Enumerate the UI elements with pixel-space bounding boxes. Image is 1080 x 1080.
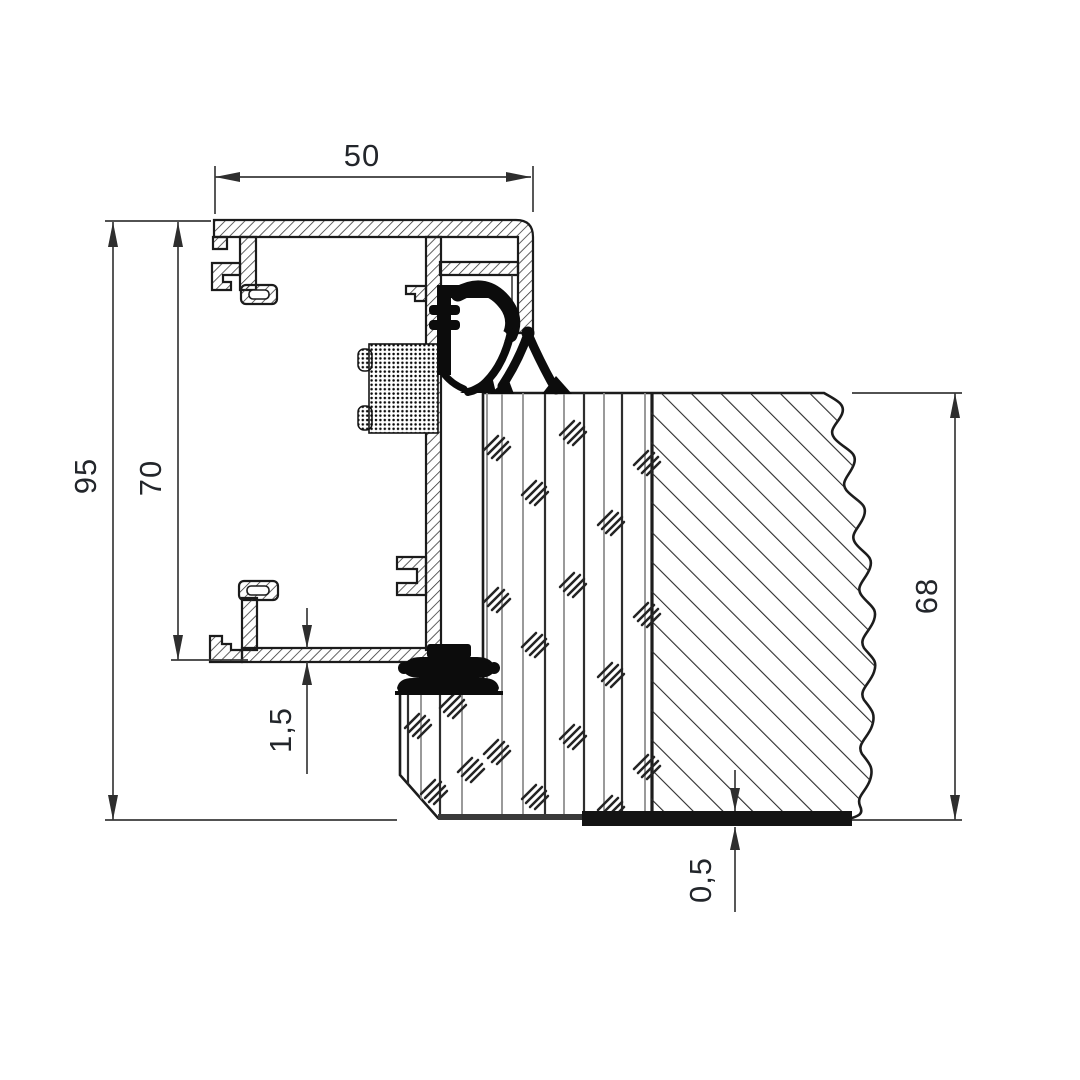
dim-top-width bbox=[215, 166, 533, 214]
frame-left-hook-top bbox=[212, 263, 240, 290]
technical-drawing-page: 50 95 70 1,5 68 0,5 bbox=[0, 0, 1080, 1080]
dim-label-top-width: 50 bbox=[344, 138, 380, 173]
bottom-sheet-left bbox=[438, 814, 586, 820]
rebate-gasket bbox=[429, 285, 572, 394]
dim-label-bottom-sheet-thickness: 0,5 bbox=[683, 857, 718, 903]
dim-overall-height bbox=[105, 221, 397, 820]
frame-chamber-divider bbox=[440, 262, 518, 275]
frame-left-tab bbox=[213, 237, 227, 249]
dim-label-overall-height: 95 bbox=[68, 458, 103, 494]
dim-frame-height bbox=[171, 222, 248, 660]
door-leaf bbox=[400, 390, 886, 826]
frame-left-hook-bottom bbox=[210, 636, 242, 662]
dim-label-flange-thickness: 1,5 bbox=[263, 707, 298, 753]
frame-foot-slot-top bbox=[249, 290, 269, 299]
bottom-sheet-heavy bbox=[582, 811, 852, 826]
frame-left-wall-bottom bbox=[242, 598, 257, 650]
section-hatch-zone bbox=[651, 390, 886, 822]
brush-seal bbox=[358, 344, 438, 433]
section-drawing: 50 95 70 1,5 68 0,5 bbox=[0, 0, 1080, 1080]
frame-clip-lower bbox=[397, 557, 426, 595]
frame-foot-slot-bottom bbox=[247, 586, 269, 595]
dim-label-frame-height: 70 bbox=[133, 460, 168, 496]
dim-label-leaf-thickness: 68 bbox=[909, 578, 944, 614]
frame-left-wall bbox=[240, 237, 256, 290]
frame-hook-upper bbox=[406, 286, 426, 301]
